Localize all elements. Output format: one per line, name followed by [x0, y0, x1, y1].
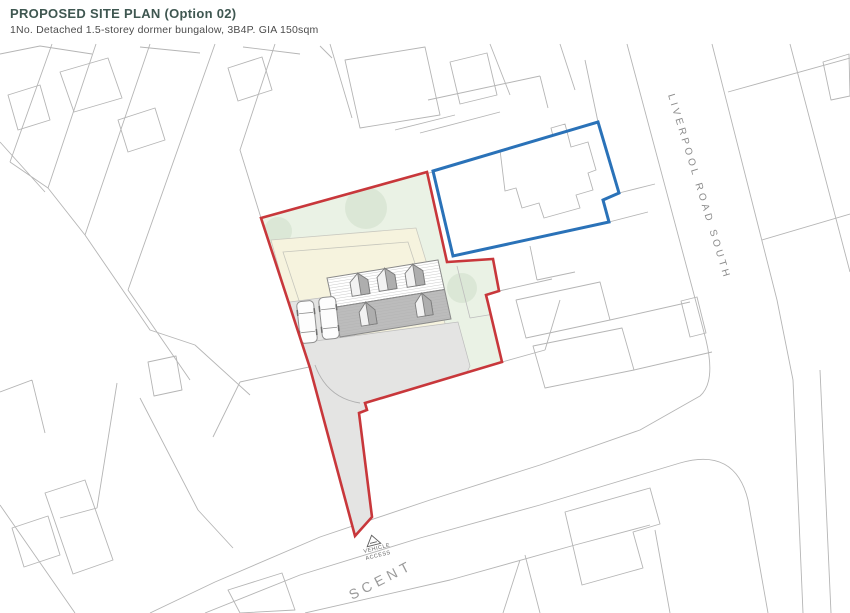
title-block: PROPOSED SITE PLAN (Option 02) 1No. Deta…: [10, 6, 319, 36]
road-label-liverpool-road-south: LIVERPOOL ROAD SOUTH: [665, 93, 732, 282]
page-title: PROPOSED SITE PLAN (Option 02): [10, 6, 319, 22]
site-plan-page: PROPOSED SITE PLAN (Option 02) 1No. Deta…: [0, 0, 850, 613]
vehicle-access-marker: VEHICLE ACCESS: [363, 534, 391, 562]
tree-icon: [447, 273, 477, 303]
page-subtitle: 1No. Detached 1.5-storey dormer bungalow…: [10, 24, 319, 36]
site-plan-map: VEHICLE ACCESS LIVERPOOL ROAD SOUTH SCEN…: [0, 0, 850, 613]
